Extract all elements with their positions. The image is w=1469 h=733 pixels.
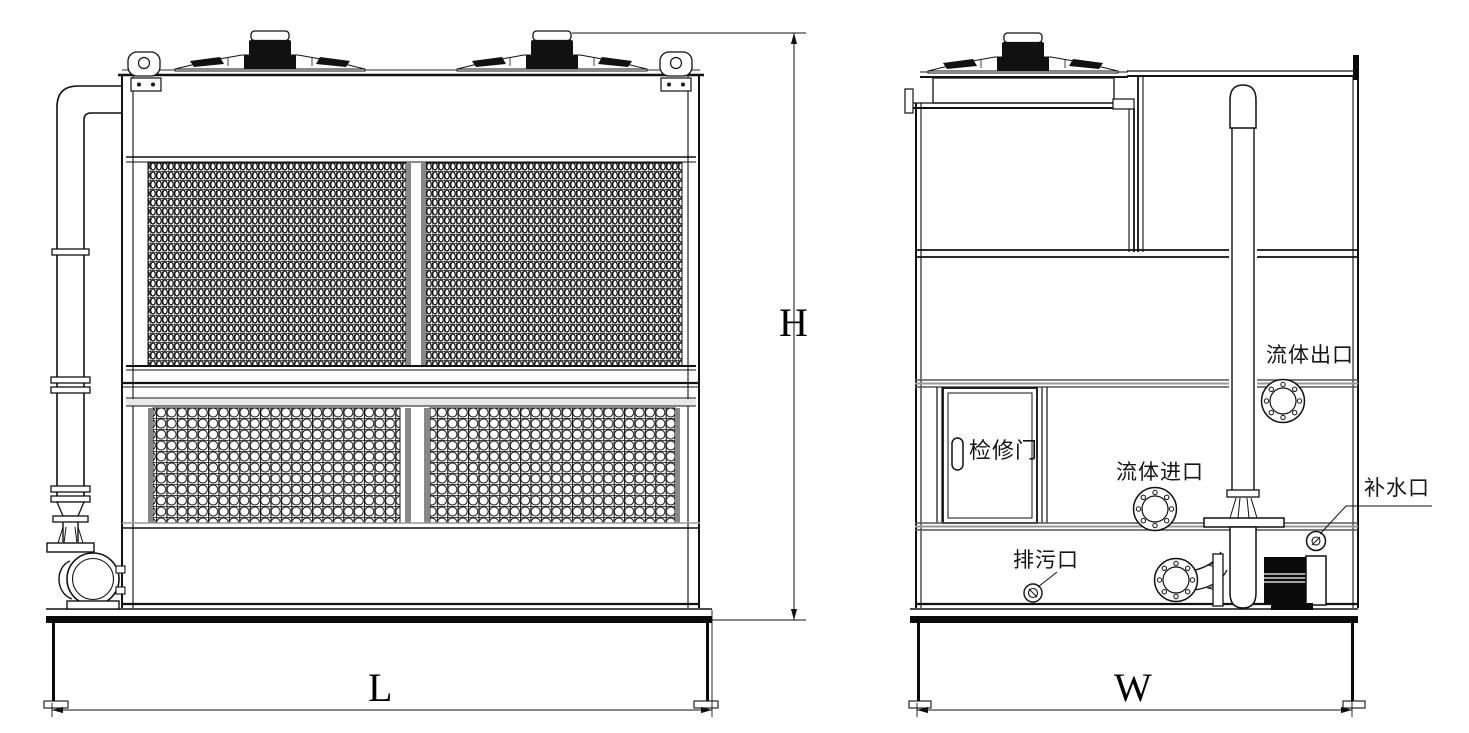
dim-label-length: L xyxy=(368,668,392,708)
engineering-drawing-canvas: 检修门 流体出口 流体进口 排污口 补水口 L H W xyxy=(0,0,1469,733)
spray-pump-front xyxy=(59,553,125,609)
fan-assembly-left xyxy=(175,31,365,71)
lifting-lug-left xyxy=(128,52,161,91)
spray-pump-side xyxy=(1155,527,1327,610)
drain-fitting xyxy=(1024,572,1057,602)
lifting-lug-right xyxy=(660,52,692,91)
cooling-tower-diagram xyxy=(0,0,1469,733)
base-rail-side xyxy=(910,616,1358,623)
door-handle xyxy=(952,438,963,470)
drain-port-label: 排污口 xyxy=(1013,550,1079,571)
fluid-inlet-flange xyxy=(1134,488,1177,531)
coil-panel-left xyxy=(148,163,406,366)
fluid-inlet-label: 流体进口 xyxy=(1116,462,1204,483)
pump-motor xyxy=(1264,557,1306,603)
pump-suction-flange xyxy=(1155,559,1198,602)
fluid-outlet-label: 流体出口 xyxy=(1266,345,1354,366)
base-rail-front xyxy=(46,616,712,623)
louver-center-mullion xyxy=(405,408,411,523)
fan-cowl xyxy=(933,78,1114,103)
dim-label-height: H xyxy=(779,303,808,343)
riser-pipe-side xyxy=(1204,84,1284,527)
makeup-water-label: 补水口 xyxy=(1364,478,1430,499)
intake-louver-left xyxy=(153,408,400,523)
riser-pipe-front xyxy=(47,86,122,552)
dim-label-width: W xyxy=(1114,668,1152,708)
intake-louver-right xyxy=(430,408,675,523)
fan-assembly-side xyxy=(928,33,1118,73)
coil-panel-right xyxy=(426,163,682,366)
fluid-outlet-flange xyxy=(1262,380,1305,423)
fan-assembly-right xyxy=(457,31,647,71)
coil-center-mullion xyxy=(406,163,411,366)
front-view xyxy=(44,31,718,708)
side-view xyxy=(905,33,1432,708)
makeup-water-fitting xyxy=(1307,506,1433,551)
access-door-label: 检修门 xyxy=(969,441,1038,463)
